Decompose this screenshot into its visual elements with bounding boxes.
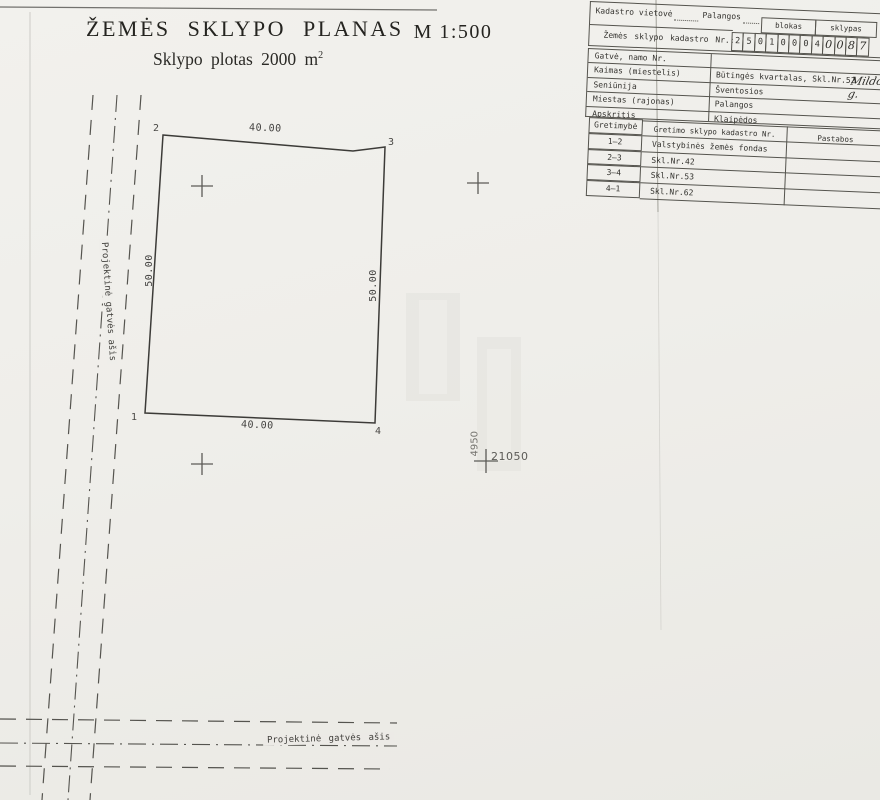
plan-title-row: ŽEMĖS SKLYPO PLANAS M 1:500	[86, 16, 492, 42]
paper-top-edge	[0, 7, 437, 10]
grid-coordinate-y: 4950	[470, 429, 481, 457]
cadastre-location-value: Palangos	[702, 11, 741, 22]
paper-fold-crease-faint	[658, 212, 661, 630]
dimension-right: 50.00	[368, 269, 379, 302]
grid-cross	[191, 175, 213, 197]
projected-street-vertical	[42, 95, 141, 800]
page-title: ŽEMĖS SKLYPO PLANAS	[86, 16, 404, 42]
plot-area-subtitle: Sklypo plotas 2000 m2	[153, 49, 323, 70]
grid-coordinate-x: 21050	[491, 450, 529, 463]
dimension-left: 50.00	[144, 254, 155, 287]
dotted-leader	[743, 14, 759, 24]
grid-cross	[191, 453, 213, 475]
cadastre-location-label: Kadastro vietovė	[595, 6, 672, 18]
scanned-land-plot-plan: { "title": { "main": "ŽEMĖS SKLYPO PLANA…	[0, 0, 880, 800]
dotted-leader	[674, 12, 698, 22]
corner-label-4: 4	[375, 426, 381, 437]
dimension-bottom: 40.00	[241, 419, 274, 431]
adjacency-table: Gretimybė 1–2 2–3 3–4 4–1 Gretimo sklypo…	[586, 118, 880, 209]
cadastre-number-label: Žemės sklypo kadastro Nr.:	[603, 31, 734, 45]
cadastre-form: Kadastro vietovė Palangos blokas sklypas…	[581, 0, 880, 222]
corner-label-2: 2	[153, 123, 159, 134]
projected-street-horizontal	[0, 719, 397, 769]
dimension-top: 40.00	[249, 122, 282, 134]
plot-boundary	[145, 135, 385, 423]
address-table: Gatvė, namo Nr. Kaimas (miestelis) Būtin…	[585, 48, 880, 130]
corner-label-1: 1	[131, 412, 137, 423]
plan-scale: M 1:500	[414, 21, 493, 44]
table-cell: 4–1	[586, 180, 641, 198]
digit-cell-handwritten: 7	[856, 37, 869, 57]
grid-cross	[467, 172, 489, 194]
scan-watermark	[406, 293, 521, 471]
corner-label-3: 3	[388, 137, 394, 148]
